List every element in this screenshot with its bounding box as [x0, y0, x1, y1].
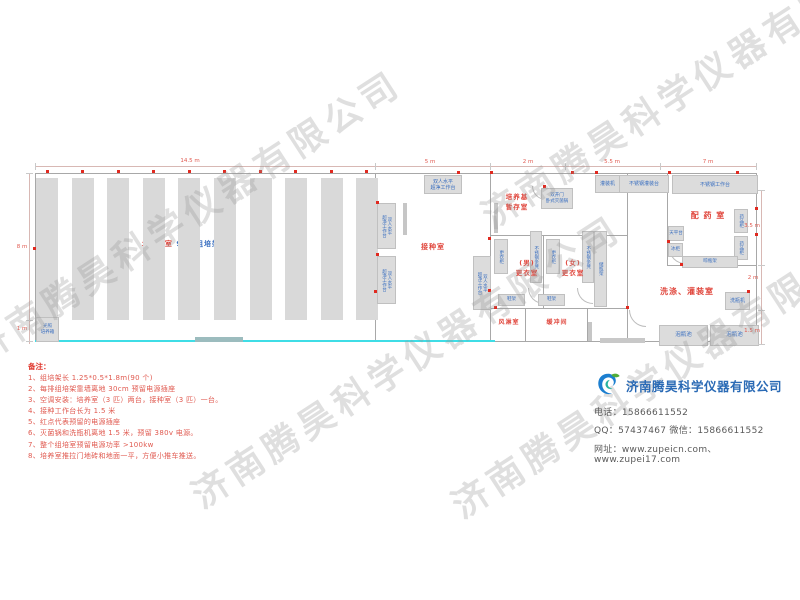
- dimension-tick: [758, 190, 765, 191]
- power-socket-dot: [223, 170, 226, 173]
- power-socket-dot: [736, 171, 739, 174]
- bottle-drying-rack: 晾瓶架: [682, 256, 738, 268]
- power-socket-dot: [668, 171, 671, 174]
- power-socket-dot: [376, 253, 379, 256]
- dimension-label: 1 m: [17, 326, 28, 332]
- freezer: 冰柜: [668, 243, 683, 257]
- power-socket-dot: [117, 170, 120, 173]
- dimension-tick: [756, 163, 757, 170]
- power-socket-dot: [152, 170, 155, 173]
- shoe-rack-2: 鞋架: [538, 294, 565, 306]
- notes-list: 1、组培架长 1.25*0.5*1.8m(90 个)2、每排组培架靠墙离地 30…: [28, 375, 308, 460]
- power-socket-dot: [747, 290, 750, 293]
- label-men-changing-room: (男) 更衣室: [516, 258, 539, 278]
- power-socket-dot: [488, 289, 491, 292]
- power-socket-dot: [755, 207, 758, 210]
- dimension-label: 1.5 m: [744, 328, 760, 334]
- power-socket-dot: [259, 170, 262, 173]
- company-name: 济南腾昊科学仪器有限公司: [626, 376, 782, 395]
- note-item: 3、空调安装：培养室（3 匹）两台，接种室（3 匹）一台。: [28, 397, 308, 405]
- floor-plan: 培 养 室 90个组培架 过道0.6米 双人水平 超净工作台双人水平 超净工作台…: [0, 0, 800, 600]
- dimension-tick: [490, 163, 491, 170]
- dimension-label: 2 m: [523, 159, 534, 165]
- power-socket-dot: [494, 306, 497, 309]
- page: { "watermark": { "text": "济南腾昊科学仪器有限公司",…: [0, 0, 800, 600]
- note-item: 1、组培架长 1.25*0.5*1.8m(90 个): [28, 375, 308, 383]
- power-socket-dot: [330, 170, 333, 173]
- label-media-storage-room: 培养基 暂存室: [506, 192, 529, 212]
- dimension-tick: [758, 310, 765, 311]
- power-socket-dot: [490, 171, 493, 174]
- power-socket-dot: [543, 185, 546, 188]
- note-item: 7、整个组培室预留电源功率 >100kw: [28, 442, 308, 450]
- culture-rack: [36, 178, 58, 320]
- culture-rack: [356, 178, 378, 320]
- note-item: 6、灭菌锅和洗瓶机离地 1.5 米，预留 380v 电源。: [28, 430, 308, 438]
- culture-rack: [250, 178, 272, 320]
- wall-airshower-right: [525, 308, 526, 341]
- company-logo-icon: [594, 371, 622, 399]
- power-socket-dot: [457, 171, 460, 174]
- culture-rack: [72, 178, 94, 320]
- clean-bench-top: 双人水平 超净工作台: [424, 175, 462, 194]
- dimension-label: 2 m: [748, 275, 759, 281]
- bottle-soaking-pool-1: 泡瓶池: [659, 325, 708, 346]
- company-qq-wechat: QQ：57437467 微信：15866611552: [594, 423, 799, 436]
- balance-table: 天平台: [668, 226, 684, 241]
- notes-title: 备注：: [28, 361, 308, 372]
- culture-rack: [214, 178, 236, 320]
- door-slab-3: [588, 322, 592, 341]
- power-socket-dot: [33, 247, 36, 250]
- culture-rack: [107, 178, 129, 320]
- note-item: 4、接种工作台长为 1.5 米: [28, 408, 308, 416]
- dimension-tick: [660, 163, 661, 170]
- bottle-storage-rack: 储瓶架: [594, 231, 607, 307]
- company-phone: 电话：15866611552: [594, 405, 799, 418]
- front-glass-wall: [35, 340, 495, 342]
- power-socket-dot: [571, 171, 574, 174]
- culture-rack: [143, 178, 165, 320]
- power-socket-dot: [81, 170, 84, 173]
- door-arc-washing: [629, 310, 646, 327]
- dimension-line-top: [35, 166, 757, 167]
- power-socket-dot: [680, 263, 683, 266]
- steel-work-table: 不锈钢工作台: [672, 175, 758, 194]
- power-socket-dot: [667, 240, 670, 243]
- door-slab-1: [403, 203, 407, 235]
- clean-bench-left-1: 双人水平 超净工作台: [377, 203, 396, 249]
- power-socket-dot: [46, 170, 49, 173]
- power-socket-dot: [188, 170, 191, 173]
- door-slab-2: [494, 203, 498, 233]
- dimension-tick: [565, 163, 566, 170]
- dimension-label: 5.5 m: [604, 159, 620, 165]
- dimension-tick: [758, 344, 765, 345]
- filling-machine: 灌装机: [595, 175, 620, 193]
- locker-men: 更衣柜: [494, 239, 508, 274]
- company-info: 济南腾昊科学仪器有限公司 电话：15866611552 QQ：57437467 …: [594, 371, 799, 465]
- power-socket-dot: [294, 170, 297, 173]
- power-socket-dot: [374, 290, 377, 293]
- note-item: 5、红点代表预留的电源插座: [28, 419, 308, 427]
- label-washing-filling-room: 洗涤、灌装室: [660, 286, 714, 298]
- label-inoculation-room: 接种室: [421, 242, 445, 253]
- note-item: 2、每排组培架靠墙离地 30cm 预留电源插座: [28, 386, 308, 394]
- dimension-label: 5 m: [425, 159, 436, 165]
- wall-changing-airshower: [490, 308, 627, 309]
- notes-section: 备注： 1、组培架长 1.25*0.5*1.8m(90 个)2、每排组培架靠墙离…: [28, 361, 308, 464]
- dimension-line-right: [761, 190, 762, 345]
- wall-right: [756, 173, 757, 341]
- note-item: 8、培养室推拉门地砖和地面一平，方便小推车推送。: [28, 453, 308, 461]
- power-socket-dot: [365, 170, 368, 173]
- dimension-tick: [35, 163, 36, 170]
- bottle-washing-machine: 洗瓶机: [725, 292, 750, 310]
- culture-rack: [285, 178, 307, 320]
- shoe-rack-1: 鞋架: [498, 294, 525, 306]
- dimension-tick: [375, 163, 376, 170]
- sliding-door-culture: [195, 337, 243, 342]
- dimension-label: 8 m: [17, 244, 28, 250]
- clean-bench-left-2: 双人水平 超净工作台: [377, 256, 396, 304]
- label-women-changing-room: (女) 更衣室: [562, 258, 585, 278]
- dimension-tick: [26, 320, 33, 321]
- culture-rack: [178, 178, 200, 320]
- dimension-label: 7 m: [703, 159, 714, 165]
- wall-top: [35, 173, 757, 174]
- dimension-tick: [26, 173, 33, 174]
- dimension-line-left: [29, 173, 30, 344]
- medicine-cabinet-1: 药品柜: [734, 209, 748, 233]
- door-arc-women: [577, 288, 593, 304]
- dimension-label: 14.5 m: [180, 158, 199, 164]
- wall-changing-washing: [627, 173, 628, 341]
- autoclave: 双开门 卧式灭菌锅: [541, 188, 573, 209]
- culture-rack: [321, 178, 343, 320]
- label-medicine-prep-room: 配 药 室: [691, 210, 726, 222]
- power-socket-dot: [488, 237, 491, 240]
- clean-bench-right: 双人水平 超净工作台: [473, 256, 491, 310]
- power-socket-dot: [376, 201, 379, 204]
- locker-women: 更衣柜: [546, 239, 560, 274]
- power-socket-dot: [626, 306, 629, 309]
- power-socket-dot: [595, 171, 598, 174]
- dimension-tick: [758, 265, 765, 266]
- company-website: 网址：www.zupeicn.com、 www.zupei17.com: [594, 442, 799, 465]
- steel-filling-table: 不锈钢灌装台: [619, 175, 669, 193]
- label-air-shower-room: 风淋室: [498, 318, 519, 327]
- dimension-label: 3.5 m: [744, 223, 760, 229]
- power-socket-dot: [755, 233, 758, 236]
- light-incubator: 光照 培养箱: [36, 317, 59, 342]
- sliding-door-washing: [600, 338, 645, 343]
- label-buffer-room: 缓冲间: [546, 318, 567, 327]
- dimension-tick: [26, 341, 33, 342]
